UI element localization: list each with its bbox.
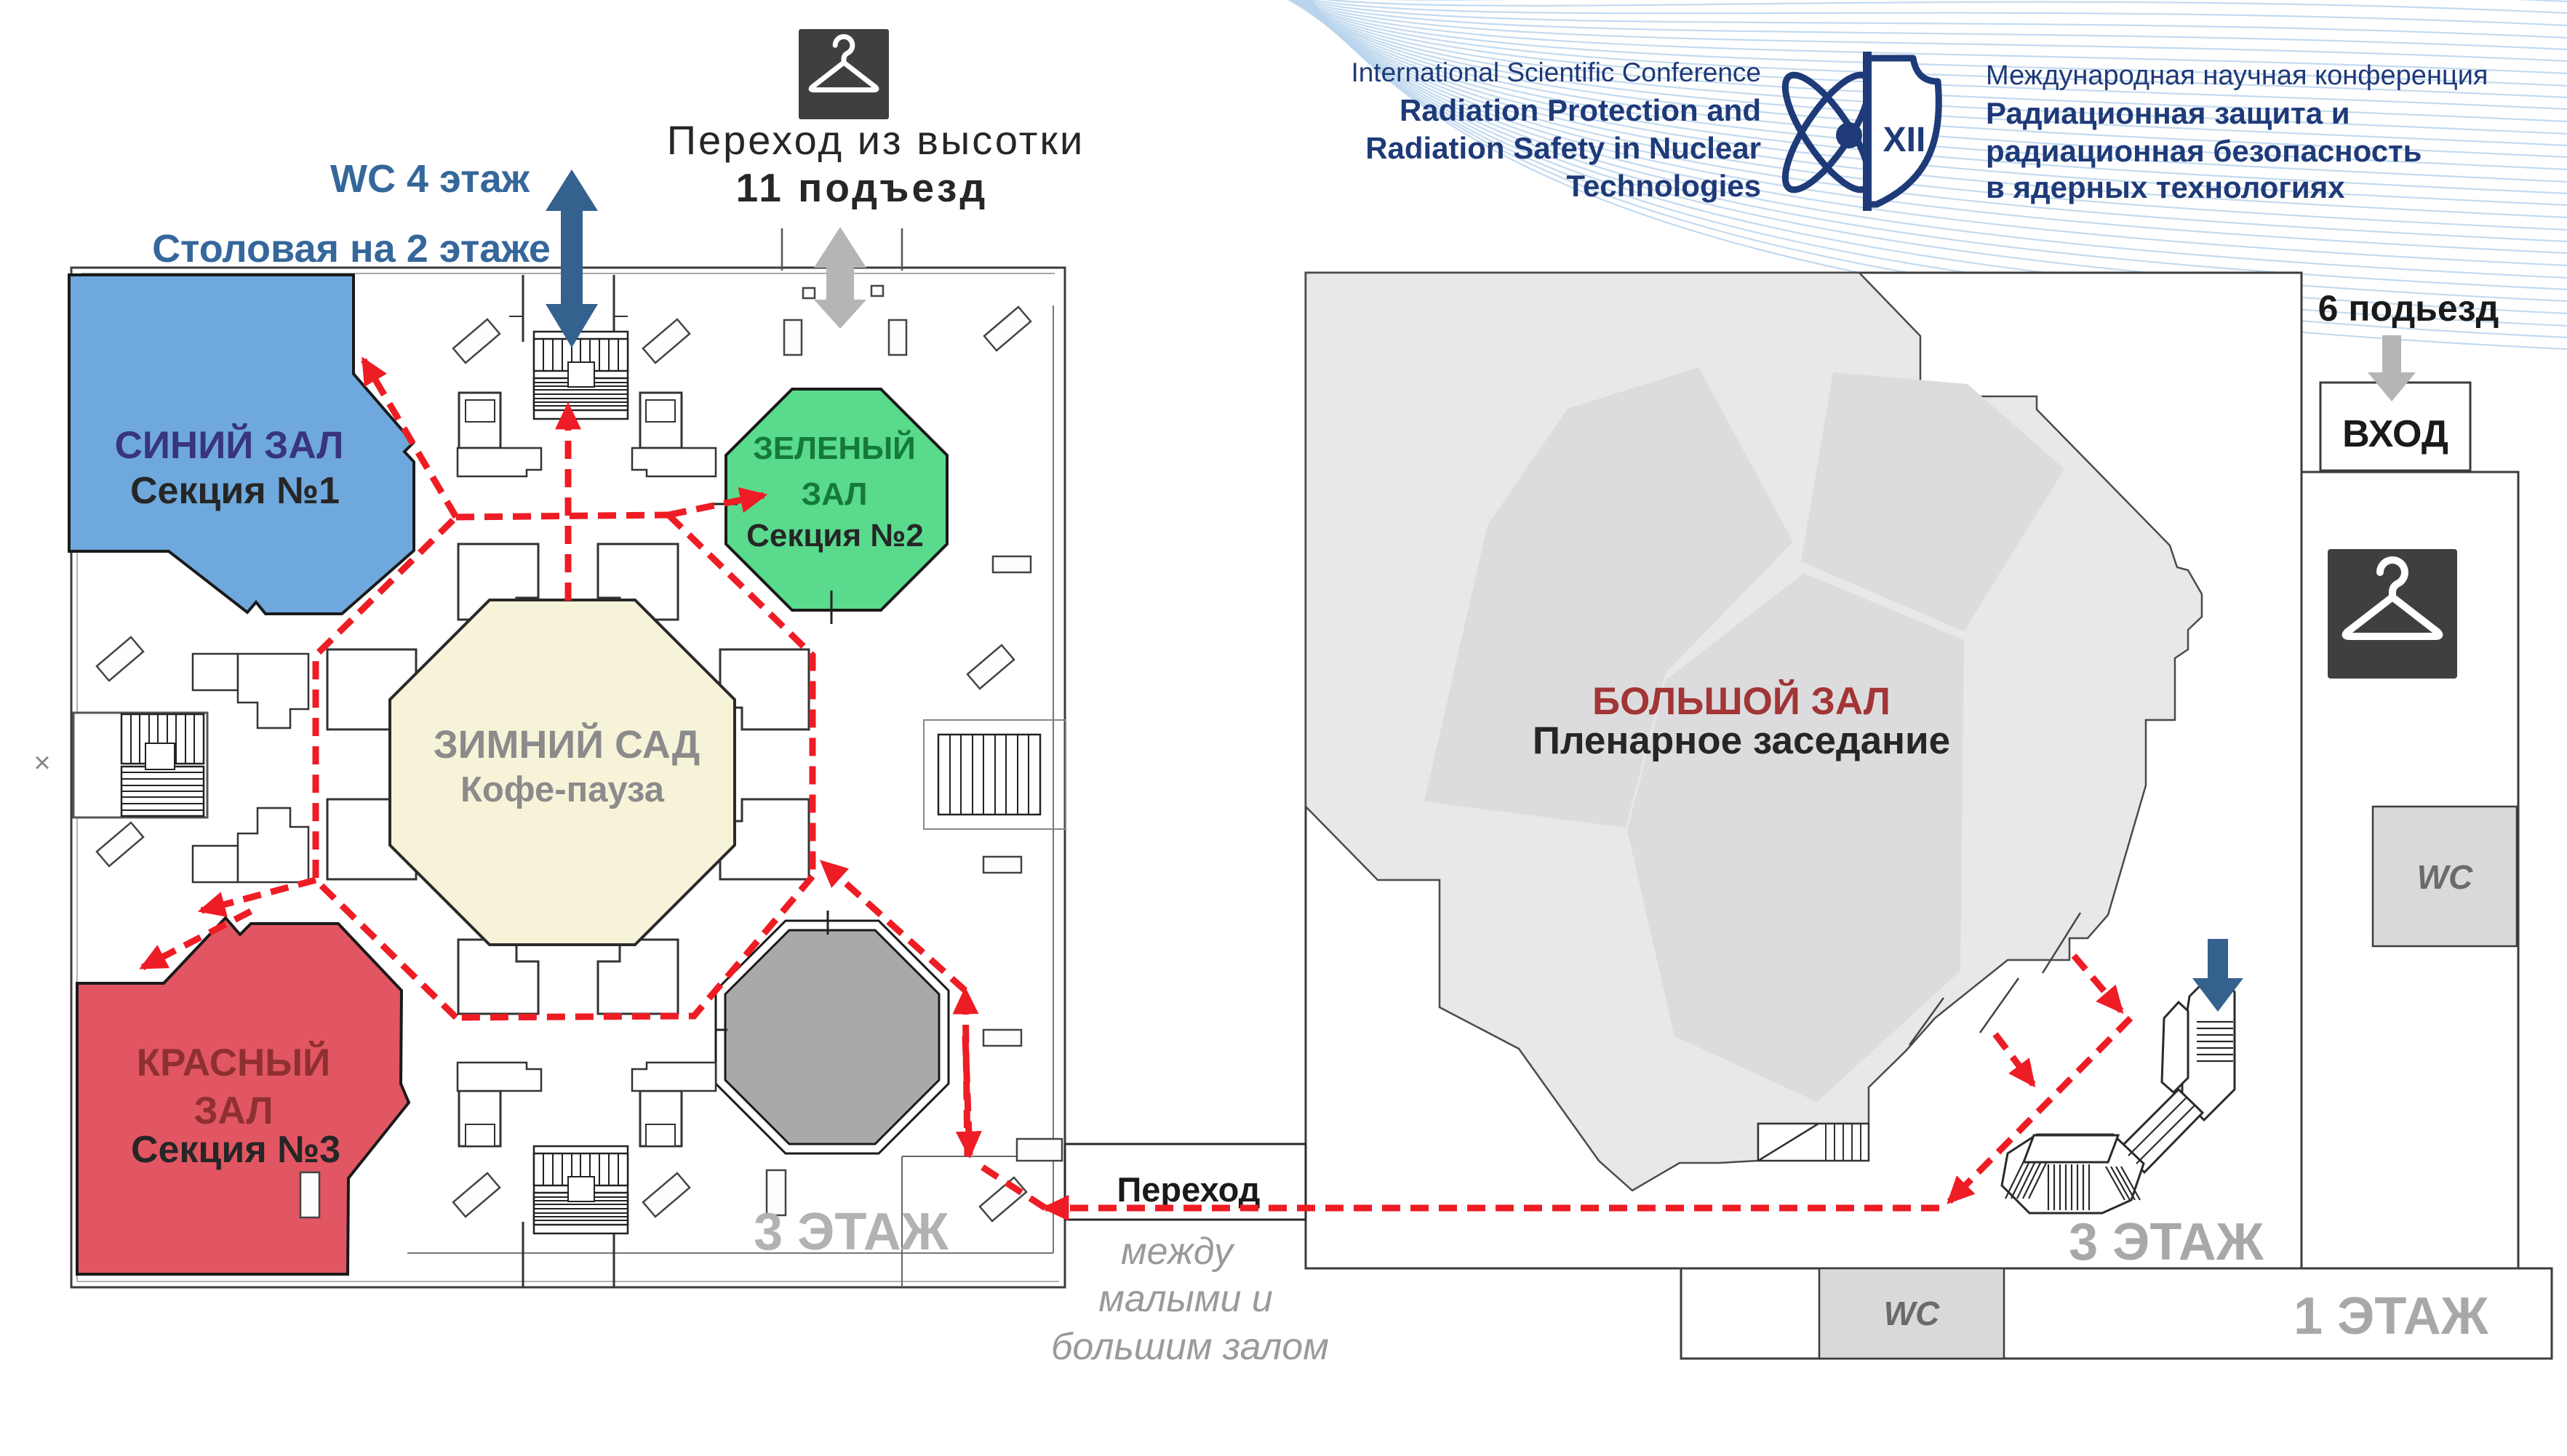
svg-text:ВХОД: ВХОД bbox=[2342, 413, 2448, 455]
svg-text:в ядерных технологиях: в ядерных технологиях bbox=[1986, 170, 2345, 204]
svg-text:3 ЭТАЖ: 3 ЭТАЖ bbox=[754, 1203, 949, 1261]
svg-text:International Scientific Confe: International Scientific Conference bbox=[1351, 57, 1761, 87]
svg-text:Секция №3: Секция №3 bbox=[131, 1129, 340, 1171]
svg-text:БОЛЬШОЙ ЗАЛ: БОЛЬШОЙ ЗАЛ bbox=[1592, 679, 1891, 723]
svg-text:СИНИЙ ЗАЛ: СИНИЙ ЗАЛ bbox=[115, 423, 344, 467]
svg-text:ЗЕЛЕНЫЙ: ЗЕЛЕНЫЙ bbox=[753, 429, 916, 466]
svg-text:Radiation Protection and: Radiation Protection and bbox=[1400, 93, 1761, 127]
svg-text:Переход: Переход bbox=[1117, 1170, 1260, 1209]
svg-text:Радиационная защита и: Радиационная защита и bbox=[1986, 96, 2350, 130]
svg-text:малыми и: малыми и bbox=[1098, 1278, 1273, 1320]
svg-text:WC: WC bbox=[2417, 858, 2473, 896]
svg-text:Пленарное заседание: Пленарное заседание bbox=[1533, 719, 1950, 762]
svg-text:ЗАЛ: ЗАЛ bbox=[193, 1089, 273, 1132]
svg-text:Radiation Safety in Nuclear: Radiation Safety in Nuclear bbox=[1365, 131, 1761, 165]
svg-text:Переход из высотки: Переход из высотки bbox=[667, 117, 1085, 163]
svg-text:Секция №1: Секция №1 bbox=[130, 470, 340, 512]
svg-text:КРАСНЫЙ: КРАСНЫЙ bbox=[137, 1040, 331, 1084]
svg-text:WC: WC bbox=[1884, 1295, 1940, 1332]
svg-text:большим залом: большим залом bbox=[1051, 1326, 1329, 1368]
svg-text:между: между bbox=[1121, 1231, 1235, 1273]
svg-text:×: × bbox=[33, 747, 50, 779]
svg-text:ЗИМНИЙ САД: ЗИМНИЙ САД bbox=[434, 722, 700, 767]
svg-text:Секция №2: Секция №2 bbox=[746, 518, 924, 553]
svg-text:6 подьезд: 6 подьезд bbox=[2318, 288, 2499, 329]
svg-text:11 подъезд: 11 подъезд bbox=[736, 165, 989, 210]
svg-text:XII: XII bbox=[1883, 121, 1926, 159]
svg-text:WC 4 этаж: WC 4 этаж bbox=[330, 157, 530, 201]
svg-text:Столовая на 2 этаже: Столовая на 2 этаже bbox=[152, 227, 551, 271]
svg-text:Международная научная конферен: Международная научная конференция bbox=[1986, 60, 2488, 91]
svg-text:Кофе-пауза: Кофе-пауза bbox=[460, 770, 665, 809]
svg-text:1 ЭТАЖ: 1 ЭТАЖ bbox=[2293, 1287, 2489, 1345]
svg-text:Technologies: Technologies bbox=[1566, 169, 1761, 203]
svg-text:радиационная безопасность: радиационная безопасность bbox=[1986, 134, 2422, 168]
svg-text:ЗАЛ: ЗАЛ bbox=[802, 476, 868, 512]
svg-text:3 ЭТАЖ: 3 ЭТАЖ bbox=[2069, 1213, 2264, 1271]
